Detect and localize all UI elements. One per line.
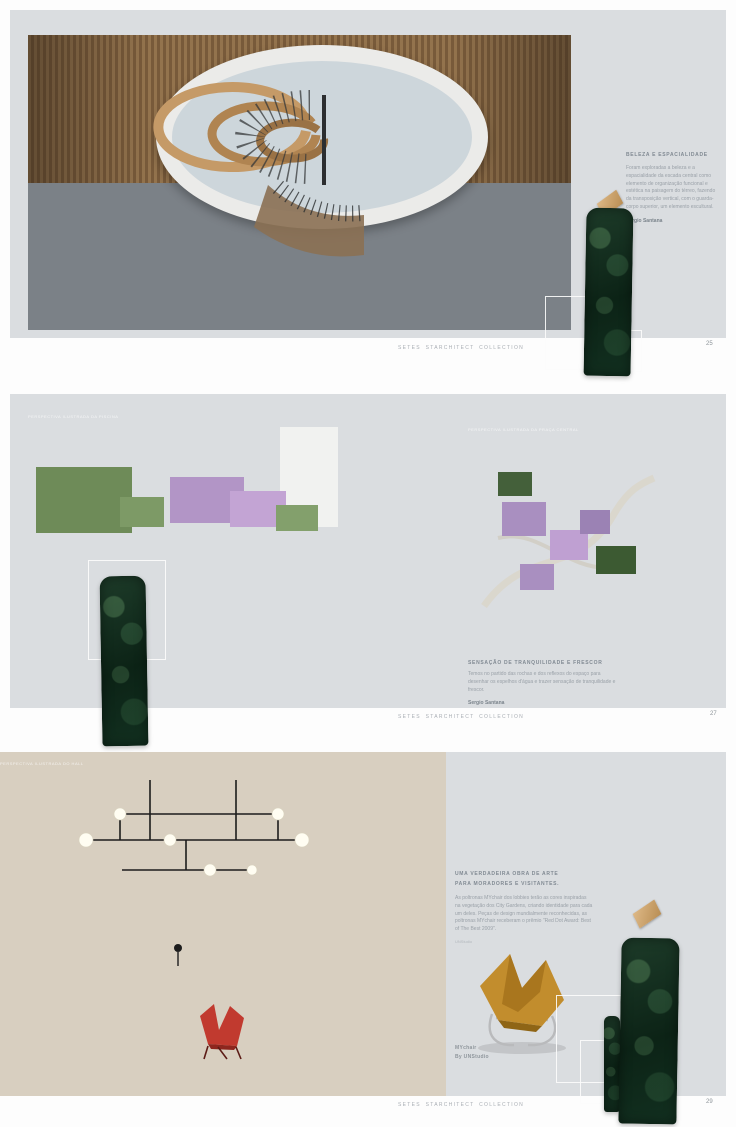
person-silhouette — [176, 251, 182, 267]
terrace-railing — [334, 555, 449, 593]
green-canopy — [596, 546, 636, 574]
brochure-canvas: PERSPECTIVA ILUSTRADA DO HALL DE ENTRADA… — [0, 0, 736, 1127]
spiral-staircase-illustration — [28, 35, 571, 330]
spread-2-heading: SENSAÇÃO DE TRANQUILIDADE E FRESCOR — [468, 660, 618, 666]
interior-hall-photo: PERSPECTIVA ILUSTRADA DO HALL — [0, 752, 446, 1096]
green-tree — [276, 505, 318, 531]
plant-pot — [56, 1052, 82, 1070]
page-number: 29 — [706, 1099, 713, 1105]
footer-brand-label: SETES STARCHITECT COLLECTION — [398, 1102, 524, 1108]
lobby-staircase-photo: PERSPECTIVA ILUSTRADA DO HALL DE ENTRADA — [28, 35, 571, 330]
spread-2: PERSPECTIVA ILUSTRADA DA PISCINA PERSPEC… — [10, 394, 726, 752]
red-butterfly-chair — [196, 1002, 248, 1060]
purple-tree-canopy — [502, 502, 546, 536]
green-tower-card — [100, 576, 149, 747]
spread-3-body: As poltronas MYchair dos lobbies terão a… — [455, 895, 593, 934]
purple-tree-canopy — [520, 564, 554, 590]
hedge-band — [28, 533, 360, 561]
spread-1-body: Foram exploradas a beleza e a espacialid… — [626, 165, 716, 212]
product-name: MYchair — [455, 1044, 489, 1053]
spread-2-body: Temos no partido das rochas e dos reflex… — [468, 671, 618, 694]
green-tree — [120, 497, 164, 527]
foreground-terrace — [328, 553, 455, 645]
spread-3: PERSPECTIVA ILUSTRADA DO HALL UMA VERDAD… — [0, 752, 736, 1127]
green-tower-card — [584, 208, 634, 377]
footer-brand-label: SETES STARCHITECT COLLECTION — [398, 345, 524, 351]
spread-3-credit: UNStudio — [455, 939, 593, 944]
pergola-beam — [42, 513, 152, 522]
page-number: 27 — [710, 711, 717, 717]
spread-1-text-column: BELEZA E ESPACIALIDADE Foram exploradas … — [626, 152, 716, 224]
footer-brand-label: SETES STARCHITECT COLLECTION — [398, 714, 524, 720]
green-tower-card-small — [604, 1016, 620, 1112]
spread-1: PERSPECTIVA ILUSTRADA DO HALL DE ENTRADA… — [10, 10, 726, 394]
spread-3-text-column: UMA VERDADEIRA OBRA DE ARTE PARA MORADOR… — [455, 870, 593, 944]
product-caption: MYchair By UNStudio — [455, 1044, 489, 1061]
person-silhouette — [480, 259, 486, 273]
spread-3-heading-line1: UMA VERDADEIRA OBRA DE ARTE — [455, 870, 593, 880]
spread-3-heading-line2: PARA MORADORES E VISITANTES. — [455, 880, 593, 890]
page-number: 25 — [706, 341, 713, 347]
foreground-planting — [28, 581, 96, 645]
green-tower-card — [618, 938, 679, 1125]
purple-tree-canopy — [580, 510, 610, 534]
aerial-courtyard-photo: PERSPECTIVA ILUSTRADA DA PRAÇA CENTRAL — [468, 418, 690, 632]
product-designer: By UNStudio — [455, 1053, 489, 1062]
spread-1-heading: BELEZA E ESPACIALIDADE — [626, 152, 716, 158]
spread-2-text-column: SENSAÇÃO DE TRANQUILIDADE E FRESCOR Temo… — [468, 660, 618, 706]
purple-tree-canopy — [550, 530, 588, 560]
green-canopy — [498, 472, 532, 496]
spread-1-signature: Sergio Santana — [626, 218, 716, 224]
potted-plant — [30, 990, 110, 1060]
spread-2-signature: Sergio Santana — [468, 700, 618, 706]
